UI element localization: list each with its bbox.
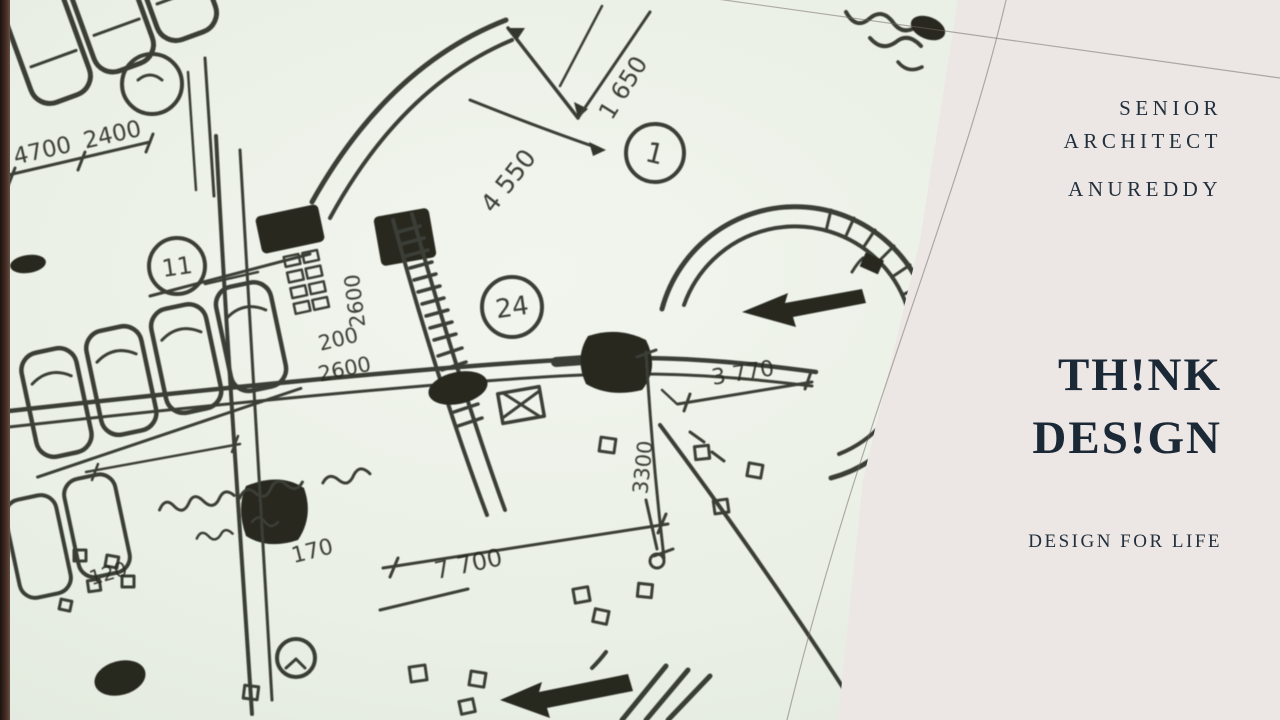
slide-canvas: 4700 2400 4 550 1 650 1 11 24 2600 200 2… bbox=[0, 0, 1280, 720]
tagline: DESIGN FOR LIFE bbox=[1028, 531, 1222, 553]
title-line-1: TH!NK bbox=[1032, 344, 1222, 407]
role-line-2: ARCHITECT bbox=[1064, 125, 1222, 158]
title-panel: SENIOR ARCHITECT ANUREDDY TH!NK DES!GN D… bbox=[0, 0, 1280, 720]
role-line-1: SENIOR bbox=[1064, 92, 1222, 125]
author-name: ANUREDDY bbox=[1064, 173, 1222, 206]
main-title: TH!NK DES!GN bbox=[1032, 344, 1222, 470]
title-line-2: DES!GN bbox=[1032, 407, 1222, 470]
role-block: SENIOR ARCHITECT ANUREDDY bbox=[1064, 92, 1222, 206]
